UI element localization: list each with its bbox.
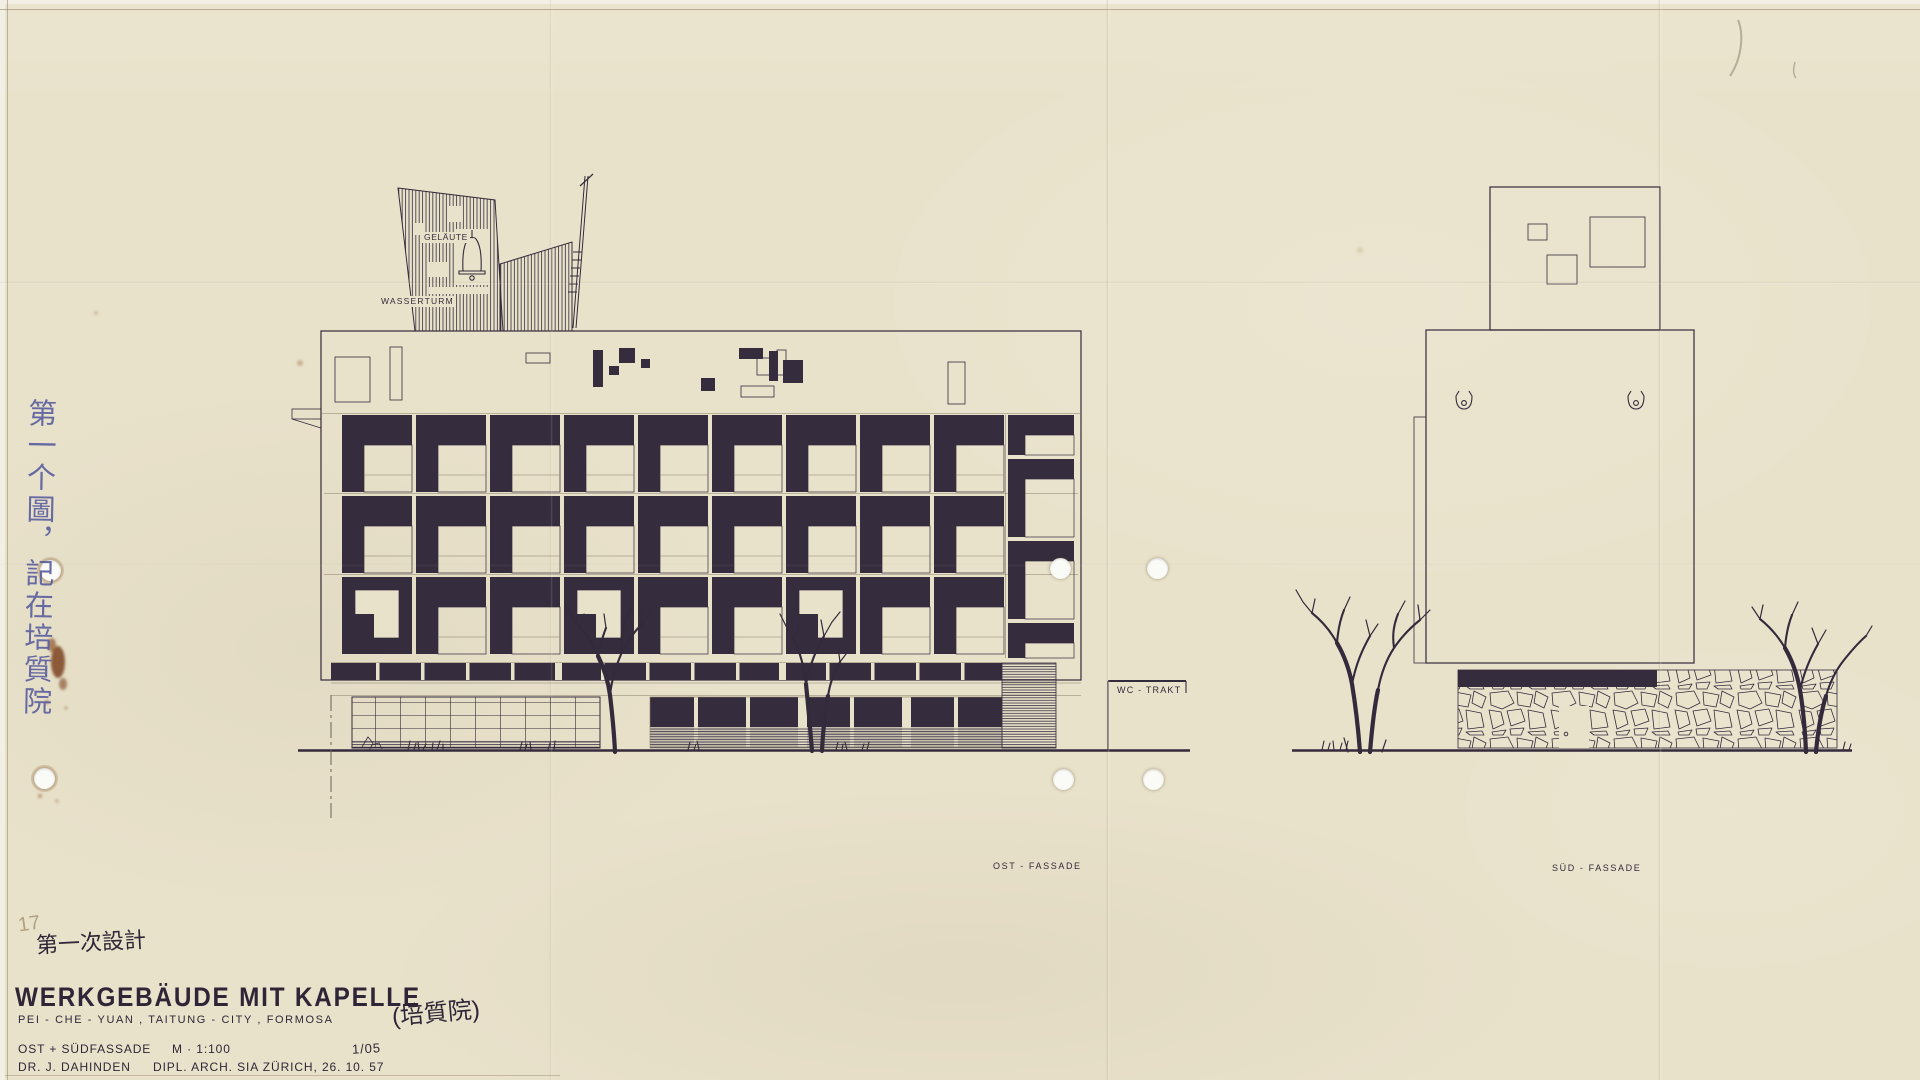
fold-crease [0, 281, 1920, 285]
design-note-chinese: 第一次設計 [35, 929, 146, 957]
fold-crease [0, 563, 1920, 567]
drawing-subtitle: PEI - CHE - YUAN , TAITUNG - CITY , FORM… [18, 1015, 334, 1026]
south-wall [1426, 330, 1694, 663]
bell-tower [398, 174, 593, 331]
bell-label: GELÄUTE [422, 232, 470, 243]
scale-note: M · 1:100 [172, 1043, 231, 1055]
paper-edge [0, 0, 1920, 4]
south-facade [1292, 187, 1852, 751]
east-facade-label: OST - FASSADE [993, 862, 1082, 871]
fascia-band [1458, 670, 1657, 687]
punch-hole [1143, 769, 1164, 790]
punch-hole [1053, 769, 1074, 790]
spout-hook [1628, 391, 1644, 409]
paper-edge-line [0, 9, 1920, 10]
pencil-mark [1794, 62, 1796, 78]
scanned-drawing-sheet: GELÄUTE WASSERTURM WC - TRAKT OST - FASS… [0, 0, 1920, 1080]
tower-ledge [429, 287, 489, 294]
south-facade-label: SÜD - FASSADE [1552, 864, 1641, 873]
fold-crease [1658, 0, 1662, 1080]
tower-window [447, 206, 463, 222]
architect-name: DR. J. DAHINDEN [18, 1061, 131, 1073]
fold-crease [549, 0, 553, 1080]
clerestory-band [331, 663, 1002, 681]
side-note-chinese: 第一个圖，記在培質院 [19, 398, 54, 738]
attic-panels [335, 347, 965, 404]
window-grid [324, 415, 1078, 658]
wall-return-strip [1414, 417, 1426, 663]
tree [1296, 590, 1430, 752]
pencil-mark [1730, 20, 1741, 76]
roof-wedge [500, 242, 572, 331]
hatched-wall [1002, 663, 1056, 748]
water-tower-label: WASSERTURM [379, 296, 456, 307]
paper-edge [0, 0, 5, 1080]
wc-trakt-label: WC - TRAKT [1117, 686, 1181, 695]
paper-edge-line [7, 0, 8, 1080]
punch-hole [1147, 558, 1168, 579]
architectural-drawing [0, 0, 1920, 1080]
stone-wall [1458, 670, 1837, 748]
spout-hook [1456, 391, 1472, 409]
architect-credentials: DIPL. ARCH. SIA ZÜRICH, 26. 10. 57 [153, 1061, 384, 1073]
content-line: OST + SÜDFASSADE [18, 1043, 151, 1055]
punch-hole [34, 768, 55, 789]
sheet-no: 1/05 [352, 1041, 382, 1055]
tower-top [1490, 187, 1660, 330]
fold-crease [1106, 0, 1110, 1080]
glass-wall-plinth [352, 740, 600, 748]
punch-hole [1050, 558, 1071, 579]
tower-window [427, 262, 447, 277]
drawing-title: WERKGEBÄUDE MIT KAPELLE [15, 984, 421, 1011]
left-canopy [292, 409, 321, 428]
door [1559, 706, 1589, 748]
east-facade [292, 174, 1190, 818]
